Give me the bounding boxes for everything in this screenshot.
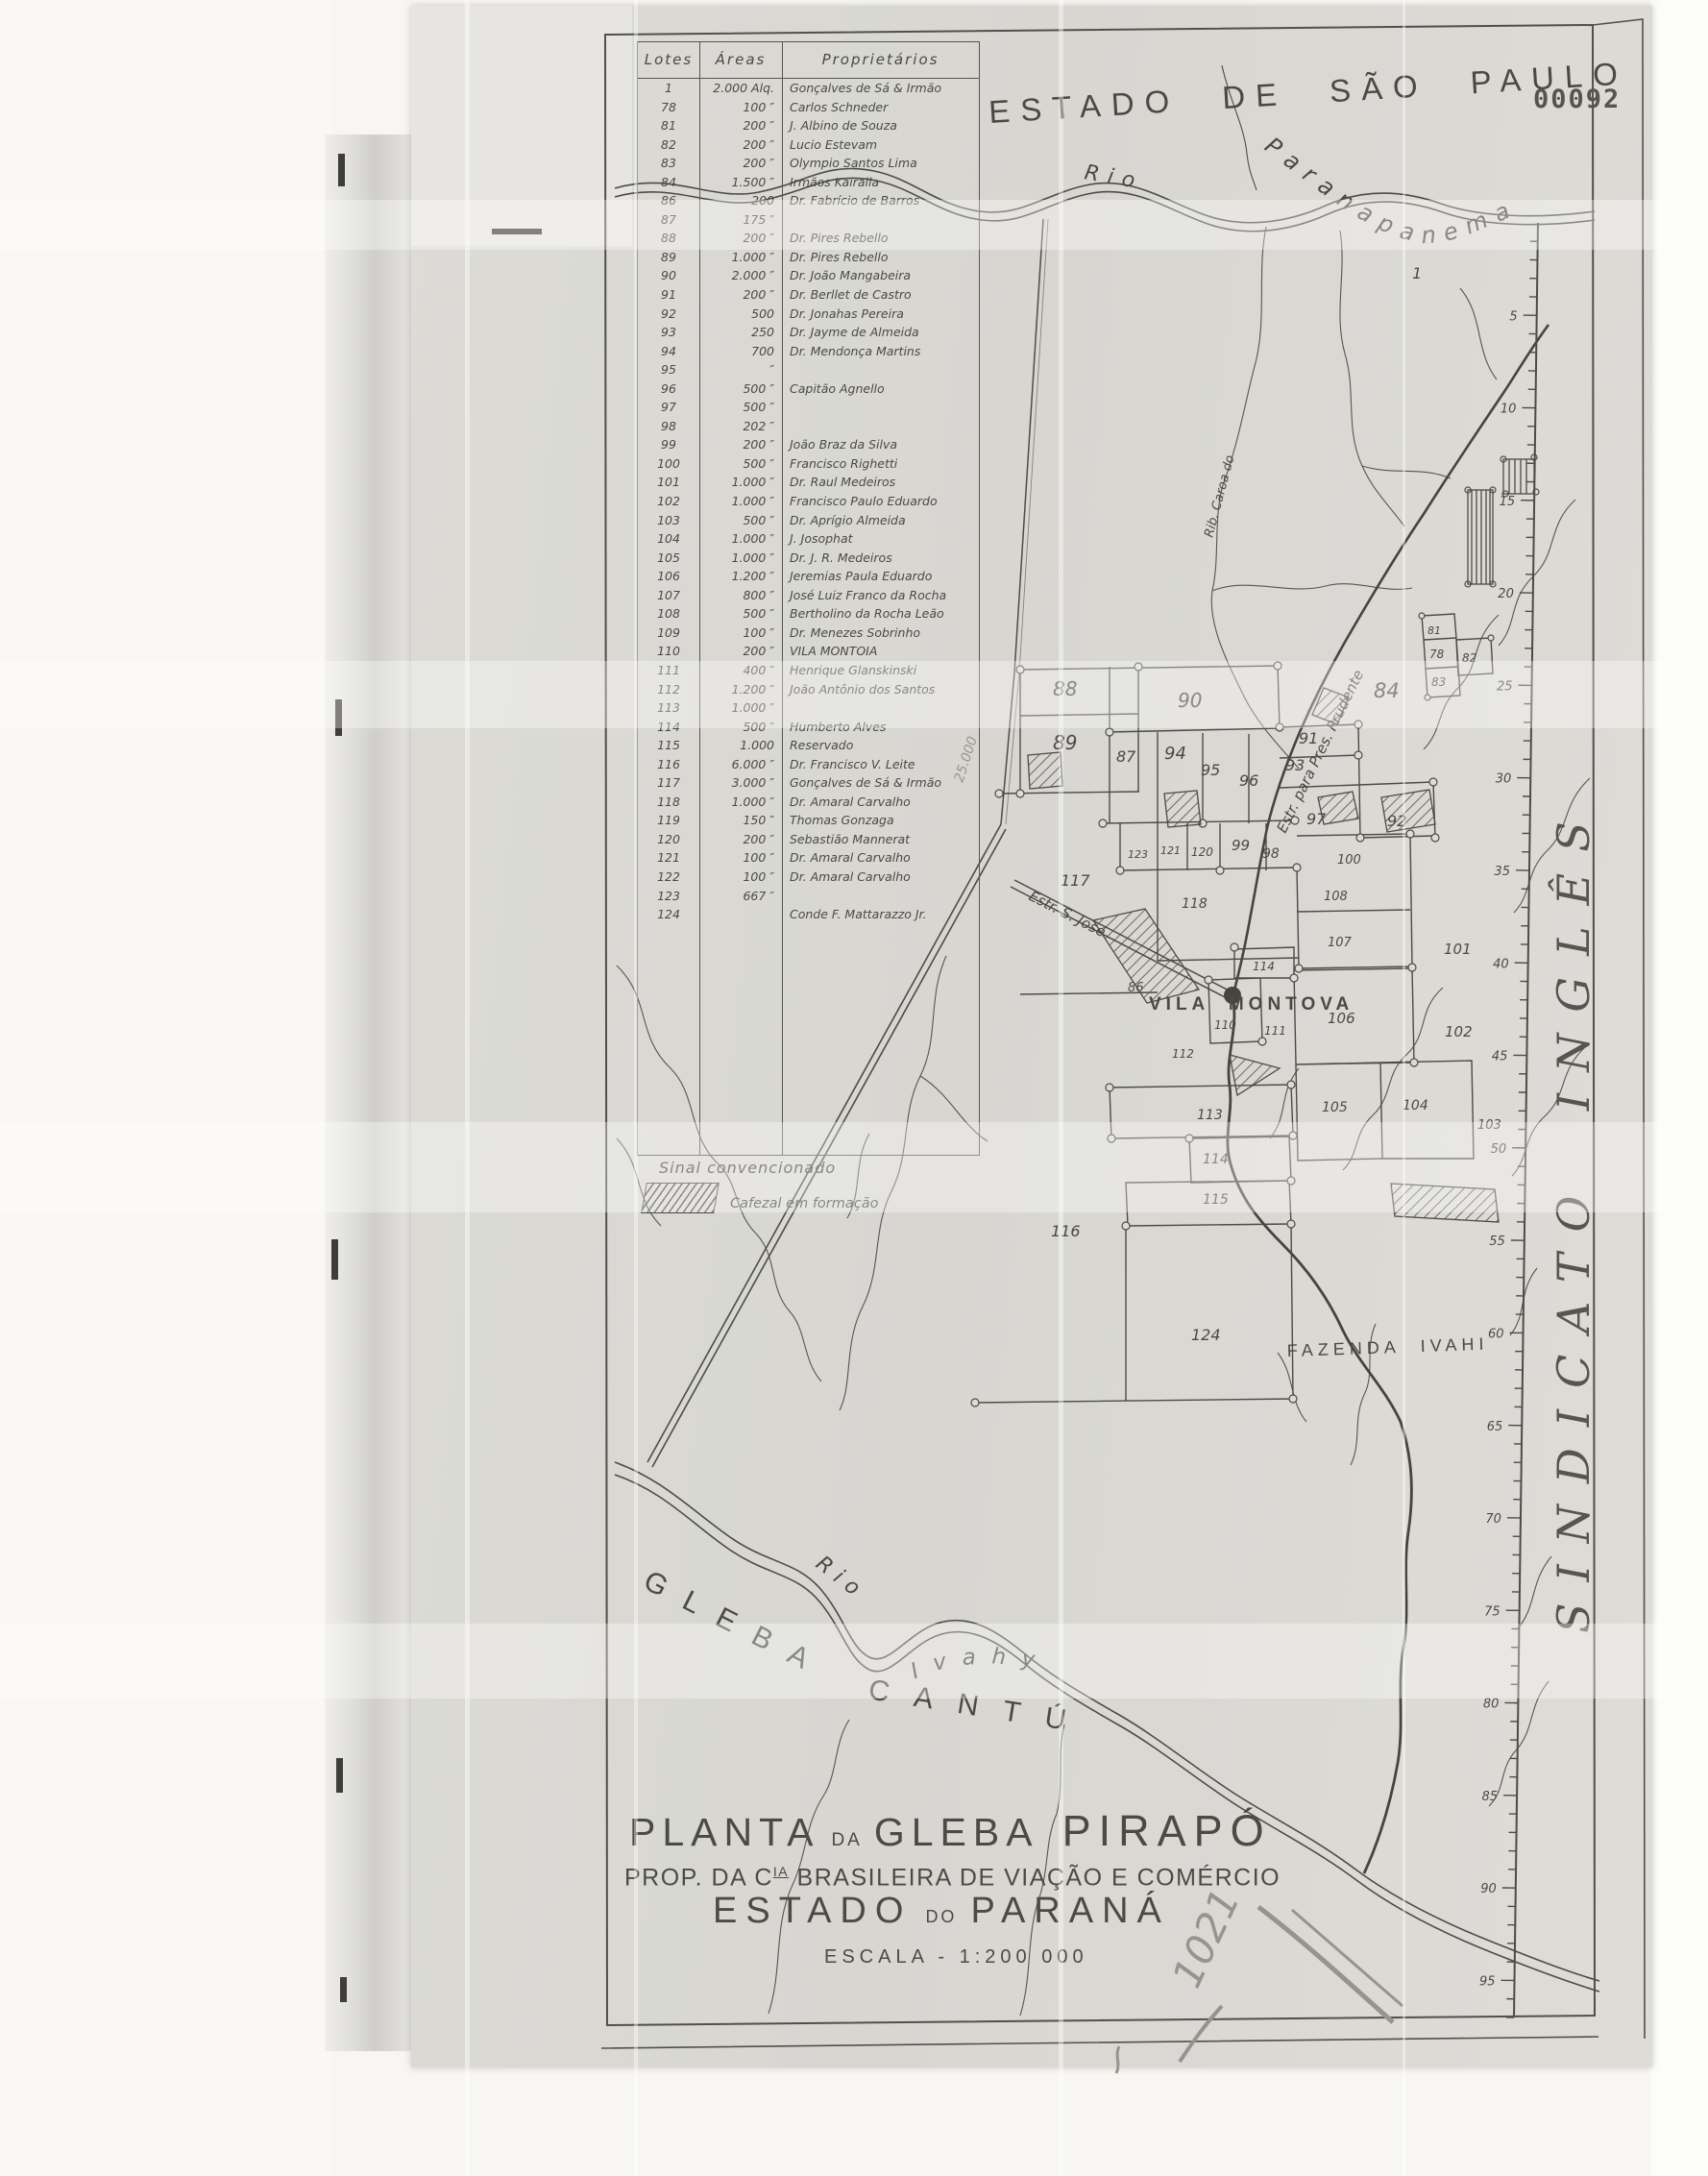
lot-area: 200 [699, 191, 782, 210]
lot-owner: Henrique Glanskinski [782, 661, 979, 680]
table-row: 87175 ″ [638, 210, 979, 230]
col-header-lotes: Lotes [638, 42, 699, 78]
lot-area: 667 ″ [699, 887, 782, 906]
lot-number: 113 [638, 698, 699, 718]
lot-owner: João Antônio dos Santos [782, 680, 979, 699]
lot-number: 109 [638, 623, 699, 643]
label-rio-ivahy-rio: Rio [811, 1552, 870, 1605]
map-scale: ESCALA - 1:200 000 [824, 1946, 1088, 1968]
lot-area: 200 ″ [699, 154, 782, 173]
parcel-number: 86 [1128, 981, 1144, 995]
table-row: 1041.000 ″J. Josophat [638, 529, 979, 549]
lot-owner [782, 360, 979, 379]
lot-area: 3.000 ″ [699, 773, 782, 793]
table-row: 100500 ″Francisco Righetti [638, 454, 979, 474]
title-pirapo: PIRAPÓ [1062, 1806, 1272, 1856]
table-row: 110200 ″VILA MONTOIA [638, 642, 979, 661]
table-row: 97500 ″ [638, 398, 979, 417]
parcel-number: 92 [1387, 812, 1406, 830]
parcel-number: 116 [1051, 1222, 1081, 1240]
parcel-number: 97 [1306, 810, 1327, 828]
label-lot-1: 1 [1412, 264, 1422, 282]
ruler-label: 10 [1501, 403, 1517, 417]
table-row: 1011.000 ″Dr. Raul Medeiros [638, 473, 979, 492]
parcel-number: 101 [1444, 941, 1472, 958]
lot-number: 93 [638, 323, 699, 342]
lot-area: 1.200 ″ [699, 567, 782, 586]
table-row: 91200 ″Dr. Berllet de Castro [638, 285, 979, 305]
table-row: 1061.200 ″Jeremias Paula Eduardo [638, 567, 979, 586]
table-row: 841.500 ″Irmãos Kairalla [638, 173, 979, 192]
parcel-number: 107 [1328, 936, 1353, 950]
lot-number: 111 [638, 661, 699, 680]
lot-number: 108 [638, 604, 699, 623]
lot-owner: João Braz da Silva [782, 435, 979, 454]
lot-area: 200 ″ [699, 135, 782, 155]
table-row: 99200 ″João Braz da Silva [638, 435, 979, 454]
table-row: 12.000 Alq.Gonçalves de Sá & Irmão [638, 79, 979, 98]
lot-number: 110 [638, 642, 699, 661]
lot-owner: Gonçalves de Sá & Irmão [782, 79, 979, 98]
lot-area: 1.000 ″ [699, 549, 782, 568]
lot-number: 115 [638, 736, 699, 755]
lot-number: 95 [638, 360, 699, 379]
lot-area: 1.200 ″ [699, 680, 782, 699]
parcel-number: 87 [1116, 747, 1136, 766]
parcel-number: 123 [1128, 848, 1148, 861]
archive-stamp-number: 00092 [1533, 85, 1621, 114]
parcel-number: 113 [1197, 1108, 1223, 1123]
lot-owner: Dr. Raul Medeiros [782, 473, 979, 492]
table-row: 98202 ″ [638, 417, 979, 436]
label-ivahy: Ivahy [907, 1644, 1051, 1684]
lot-owner: Dr. Fabrício de Barros [782, 191, 979, 210]
parcel-number: 91 [1299, 729, 1318, 747]
lot-area: ″ [699, 360, 782, 379]
legend-item-label: Cafezal em formação [730, 1196, 879, 1211]
parcel-number: 81 [1427, 624, 1441, 637]
legend-title: Sinal convencionado [659, 1159, 879, 1177]
lot-area: 2.000 Alq. [699, 79, 782, 98]
table-row: 111400 ″Henrique Glanskinski [638, 661, 979, 680]
lot-area: 200 ″ [699, 229, 782, 248]
lot-owner [782, 887, 979, 906]
label-paranapanema: Paranapanema [1259, 132, 1522, 249]
lot-owner: Dr. Amaral Carvalho [782, 793, 979, 812]
lot-owner: Irmãos Kairalla [782, 173, 979, 192]
cafezal-patches [1028, 688, 1499, 1222]
table-row: 123667 ″ [638, 887, 979, 906]
cafezal-hatch-swatch [641, 1183, 720, 1213]
ruler-label: 65 [1487, 1420, 1503, 1434]
lot-area: 100 ″ [699, 623, 782, 643]
table-row: 95″ [638, 360, 979, 379]
lot-owner [782, 398, 979, 417]
lot-area: 1.000 ″ [699, 793, 782, 812]
lot-owner: Dr. Amaral Carvalho [782, 848, 979, 868]
ruler-label: 75 [1484, 1604, 1501, 1619]
lot-table: Lotes Áreas Proprietários 12.000 Alq.Gon… [637, 41, 980, 1156]
lot-area: 1.000 [699, 736, 782, 755]
parcel-number: 78 [1429, 648, 1445, 661]
lot-number: 92 [638, 305, 699, 324]
lot-area: 100 ″ [699, 868, 782, 887]
table-row: 81200 ″J. Albino de Souza [638, 116, 979, 135]
lot-owner: Francisco Righetti [782, 454, 979, 474]
table-row: 1166.000 ″Dr. Francisco V. Leite [638, 755, 979, 774]
pencil-1021: 1021 [1163, 1882, 1250, 1995]
lot-area: 1.000 ″ [699, 473, 782, 492]
lot-area: 150 ″ [699, 811, 782, 830]
lot-owner: Gonçalves de Sá & Irmão [782, 773, 979, 793]
lot-owner: Bertholino da Rocha Leão [782, 604, 979, 623]
ruler-label: 70 [1485, 1512, 1501, 1527]
table-column-divider [699, 42, 700, 1155]
lot-number: 89 [638, 248, 699, 267]
parcel-number: 115 [1203, 1192, 1229, 1208]
lot-number: 98 [638, 417, 699, 436]
table-row: 119150 ″Thomas Gonzaga [638, 811, 979, 830]
ruler-label: 60 [1488, 1327, 1504, 1341]
lot-number: 99 [638, 435, 699, 454]
parcel-number: 124 [1191, 1326, 1221, 1344]
parcel-number: 121 [1160, 844, 1181, 857]
lot-number: 123 [638, 887, 699, 906]
table-row: 1121.200 ″João Antônio dos Santos [638, 680, 979, 699]
table-row: 78100 ″Carlos Schneder [638, 98, 979, 117]
lot-number: 122 [638, 868, 699, 887]
lot-area: 175 ″ [699, 210, 782, 230]
table-row: 108500 ″Bertholino da Rocha Leão [638, 604, 979, 623]
parcel-number: 114 [1253, 960, 1275, 973]
ruler-label: 55 [1489, 1235, 1505, 1249]
lot-area: 500 ″ [699, 454, 782, 474]
title-gleba: GLEBA [874, 1810, 1039, 1855]
title-da: DA [831, 1830, 862, 1851]
parcel-number: 82 [1462, 651, 1476, 665]
lot-owner: Dr. Jayme de Almeida [782, 323, 979, 342]
ruler-label: 50 [1491, 1142, 1507, 1157]
lot-area: 500 [699, 305, 782, 324]
lot-owner: Lucio Estevam [782, 135, 979, 155]
label-gleba: GLEBA [639, 1565, 833, 1685]
col-header-areas: Áreas [699, 42, 782, 78]
table-row: 103500 ″Dr. Aprígio Almeida [638, 511, 979, 530]
lot-area: 1.000 ″ [699, 529, 782, 549]
station-grid-symbol [1468, 459, 1534, 584]
table-row: 122100 ″Dr. Amaral Carvalho [638, 868, 979, 887]
parcel-number: 110 [1214, 1018, 1236, 1032]
lot-number: 118 [638, 793, 699, 812]
lot-number: 104 [638, 529, 699, 549]
table-row: 121100 ″Dr. Amaral Carvalho [638, 848, 979, 868]
lot-number: 87 [638, 210, 699, 230]
table-row: 902.000 ″Dr. João Mangabeira [638, 266, 979, 285]
lot-owner: Dr. J. R. Medeiros [782, 549, 979, 568]
lot-number: 83 [638, 154, 699, 173]
legend: Sinal convencionado Cafezal em formação [644, 1159, 879, 1213]
main-road [1228, 325, 1549, 1873]
parcel-number: 84 [1374, 679, 1400, 702]
parcel-number: 111 [1264, 1024, 1286, 1038]
lot-number: 102 [638, 492, 699, 511]
lot-owner: Thomas Gonzaga [782, 811, 979, 830]
lot-area: 200 ″ [699, 830, 782, 849]
lot-owner: J. Albino de Souza [782, 116, 979, 135]
table-row: 124Conde F. Mattarazzo Jr. [638, 905, 979, 924]
label-cantu: CANTÚ [866, 1674, 1093, 1740]
table-row: 120200 ″Sebastião Mannerat [638, 830, 979, 849]
table-row: 107800 ″José Luiz Franco da Rocha [638, 586, 979, 605]
parcel-number: 106 [1328, 1010, 1355, 1027]
table-row: 93250Dr. Jayme de Almeida [638, 323, 979, 342]
lot-owner: Carlos Schneder [782, 98, 979, 117]
lot-owner: Dr. Berllet de Castro [782, 285, 979, 305]
lot-area: 200 ″ [699, 116, 782, 135]
ruler-label: 80 [1483, 1698, 1500, 1712]
lot-owner: Reservado [782, 736, 979, 755]
lot-number: 91 [638, 285, 699, 305]
lot-number: 103 [638, 511, 699, 530]
parcel-number: 114 [1203, 1152, 1229, 1167]
label-fazenda-ivahi: FAZENDA IVAHI [1286, 1334, 1488, 1360]
lot-area: 500 ″ [699, 604, 782, 623]
parcel-number: 96 [1239, 771, 1258, 790]
label-rib-caroa: Rib. Caroa do [1202, 453, 1237, 539]
table-row: 891.000 ″Dr. Pires Rebello [638, 248, 979, 267]
ruler-label: 35 [1494, 865, 1510, 879]
lot-number: 119 [638, 811, 699, 830]
lot-area: 700 [699, 342, 782, 361]
lot-area: 1.500 ″ [699, 173, 782, 192]
parcel-number: 90 [1178, 689, 1202, 712]
lot-owner: Francisco Paulo Eduardo [782, 492, 979, 511]
lot-owner: Capitão Agnello [782, 379, 979, 399]
lot-owner: Dr. Francisco V. Leite [782, 755, 979, 774]
parcel-number: 98 [1262, 846, 1280, 862]
parcel-number: 94 [1164, 744, 1186, 764]
table-row: 114500 ″Humberto Alves [638, 718, 979, 737]
lot-area: 500 ″ [699, 511, 782, 530]
map-title-line3: ESTADO DO PARANÁ [713, 1891, 1170, 1932]
lot-owner: José Luiz Franco da Rocha [782, 586, 979, 605]
lot-number: 114 [638, 718, 699, 737]
parcel-number: 83 [1431, 675, 1446, 689]
lot-area: 1.000 ″ [699, 492, 782, 511]
map-title-line1: PLANTA DA GLEBA PIRAPÓ [629, 1806, 1272, 1856]
ruler-label: 15 [1500, 495, 1516, 509]
lot-owner: Jeremias Paula Eduardo [782, 567, 979, 586]
lot-number: 97 [638, 398, 699, 417]
lot-area [699, 905, 782, 924]
lot-area: 500 ″ [699, 398, 782, 417]
col-header-proprietarios: Proprietários [782, 42, 979, 78]
lot-number: 1 [638, 79, 699, 98]
lot-number: 78 [638, 98, 699, 117]
ruler-label: 30 [1496, 772, 1512, 787]
parcel-number: 117 [1061, 871, 1090, 890]
lot-table-rows: 12.000 Alq.Gonçalves de Sá & Irmão78100 … [638, 79, 979, 924]
parcel-number: 89 [1053, 731, 1077, 754]
ruler-label: 40 [1493, 957, 1509, 971]
title-estado: ESTADO [713, 1891, 912, 1932]
lot-number: 120 [638, 830, 699, 849]
parcel-number: 120 [1191, 845, 1213, 859]
lot-number: 116 [638, 755, 699, 774]
scanned-map-page: 5101520253035404550556065707580859095 Pa… [0, 0, 1708, 2176]
parcel-number: 104 [1403, 1098, 1428, 1113]
parcel-number: 102 [1445, 1023, 1473, 1040]
lot-number: 101 [638, 473, 699, 492]
lot-owner: Olympio Santos Lima [782, 154, 979, 173]
lot-area: 200 ″ [699, 435, 782, 454]
table-row: 1181.000 ″Dr. Amaral Carvalho [638, 793, 979, 812]
lot-area: 2.000 ″ [699, 266, 782, 285]
lot-owner: Dr. Mendonça Martins [782, 342, 979, 361]
lot-area: 202 ″ [699, 417, 782, 436]
lot-area: 800 ″ [699, 586, 782, 605]
lot-area: 400 ″ [699, 661, 782, 680]
lot-area: 250 [699, 323, 782, 342]
lot-owner: Dr. Menezes Sobrinho [782, 623, 979, 643]
label-estr-s-jose: Estr. S. José [1026, 888, 1109, 941]
lot-owner [782, 698, 979, 718]
table-row: 1021.000 ″Francisco Paulo Eduardo [638, 492, 979, 511]
lot-owner: Dr. Aprígio Almeida [782, 511, 979, 530]
ruler-label: 85 [1482, 1790, 1499, 1804]
lot-number: 96 [638, 379, 699, 399]
table-row: 1131.000 ″ [638, 698, 979, 718]
parcel-number: 103 [1477, 1118, 1501, 1133]
ruler-label: 20 [1498, 587, 1514, 601]
label-vila-montova: VILA MONTOVA [1149, 994, 1354, 1015]
ruler-label: 45 [1492, 1050, 1508, 1064]
parcel-number: 100 [1337, 853, 1361, 868]
lot-owner: Dr. Pires Rebello [782, 229, 979, 248]
table-row: 88200 ″Dr. Pires Rebello [638, 229, 979, 248]
parcel-number: 105 [1322, 1100, 1348, 1115]
lot-owner: Sebastião Mannerat [782, 830, 979, 849]
title-parana: PARANÁ [970, 1891, 1169, 1932]
lot-area: 6.000 ″ [699, 755, 782, 774]
table-row: 1173.000 ″Gonçalves de Sá & Irmão [638, 773, 979, 793]
lot-area: 500 ″ [699, 379, 782, 399]
lot-number: 84 [638, 173, 699, 192]
parcel-number: 93 [1285, 756, 1305, 774]
table-column-divider [782, 42, 783, 1155]
title-do: DO [925, 1907, 957, 1927]
lot-owner: J. Josophat [782, 529, 979, 549]
lot-area: 100 ″ [699, 98, 782, 117]
label-rio-paranapanema-rio: Rio [1083, 160, 1145, 194]
lot-number: 121 [638, 848, 699, 868]
lot-owner [782, 417, 979, 436]
lot-area: 100 ″ [699, 848, 782, 868]
lot-owner [782, 210, 979, 230]
lot-area: 1.000 ″ [699, 698, 782, 718]
lot-number: 107 [638, 586, 699, 605]
ruler-label: 5 [1509, 309, 1517, 324]
lot-number: 81 [638, 116, 699, 135]
table-row: 109100 ″Dr. Menezes Sobrinho [638, 623, 979, 643]
map-title-line2: PROP. DA CIA BRASILEIRA DE VIAÇÃO E COMÉ… [624, 1864, 1281, 1892]
lot-number: 124 [638, 905, 699, 924]
table-row: 82200 ″Lucio Estevam [638, 135, 979, 155]
ruler-label: 90 [1480, 1882, 1497, 1896]
lot-area: 200 ″ [699, 285, 782, 305]
lot-number: 105 [638, 549, 699, 568]
lot-number: 88 [638, 229, 699, 248]
parcel-number: 99 [1232, 837, 1250, 854]
lot-number: 82 [638, 135, 699, 155]
ruler-label: 95 [1479, 1974, 1496, 1989]
lot-number: 112 [638, 680, 699, 699]
table-row: 1151.000Reservado [638, 736, 979, 755]
lot-owner: Dr. João Mangabeira [782, 266, 979, 285]
lot-owner: Dr. Amaral Carvalho [782, 868, 979, 887]
lot-owner: Dr. Pires Rebello [782, 248, 979, 267]
lot-number: 90 [638, 266, 699, 285]
lot-owner: Conde F. Mattarazzo Jr. [782, 905, 979, 924]
parcel-number: 108 [1324, 890, 1348, 904]
table-row: 83200 ″Olympio Santos Lima [638, 154, 979, 173]
table-row: 92500Dr. Jonahas Pereira [638, 305, 979, 324]
lot-number: 86 [638, 191, 699, 210]
parcel-number: 112 [1172, 1047, 1194, 1061]
label-sindicato-ingles: SINDICATO INGLÊS [1547, 800, 1599, 1633]
lot-number: 100 [638, 454, 699, 474]
ruler-label: 25 [1497, 679, 1513, 694]
lot-owner: Dr. Jonahas Pereira [782, 305, 979, 324]
table-row: 86200Dr. Fabrício de Barros [638, 191, 979, 210]
lot-area: 200 ″ [699, 642, 782, 661]
table-row: 1051.000 ″Dr. J. R. Medeiros [638, 549, 979, 568]
parcel-number: 95 [1201, 761, 1220, 779]
lot-number: 106 [638, 567, 699, 586]
title-planta: PLANTA [629, 1810, 819, 1855]
parcel-number: 118 [1182, 896, 1208, 912]
lot-area: 1.000 ″ [699, 248, 782, 267]
lot-owner: Humberto Alves [782, 718, 979, 737]
survey-corner-nodes [971, 454, 1539, 1406]
table-row: 94700Dr. Mendonça Martins [638, 342, 979, 361]
lot-area: 500 ″ [699, 718, 782, 737]
parcel-number: 88 [1053, 677, 1077, 700]
table-row: 96500 ″Capitão Agnello [638, 379, 979, 399]
lot-owner: VILA MONTOIA [782, 642, 979, 661]
lot-table-header: Lotes Áreas Proprietários [638, 42, 979, 79]
lot-number: 94 [638, 342, 699, 361]
lot-number: 117 [638, 773, 699, 793]
